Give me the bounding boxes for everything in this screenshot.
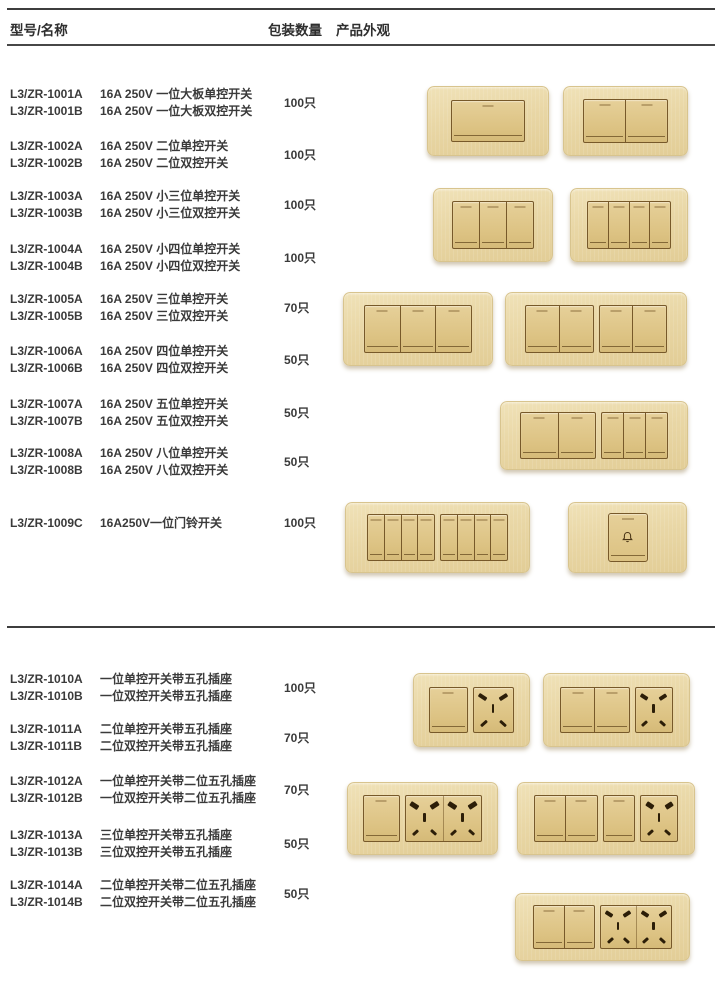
socket-slot bbox=[429, 801, 439, 809]
model-code: L3/ZR-1002A bbox=[0, 138, 100, 155]
switch-rocker-group bbox=[603, 795, 636, 842]
socket-slot bbox=[664, 829, 671, 836]
socket-face bbox=[443, 796, 481, 841]
catalog-page: 型号/名称 包装数量 产品外观 L3/ZR-1001A16A 250V 一位大板… bbox=[0, 0, 722, 981]
socket-slot bbox=[623, 937, 630, 944]
socket-5hole bbox=[473, 687, 514, 733]
product-description: 16A 250V 三位双控开关 bbox=[100, 308, 360, 325]
socket-slot bbox=[499, 720, 507, 728]
plate-1012 bbox=[347, 782, 498, 855]
model-code: L3/ZR-1003B bbox=[0, 205, 100, 222]
product-row: L3/ZR-1001A16A 250V 一位大板单控开关L3/ZR-1001B1… bbox=[0, 86, 360, 120]
product-description: 三位双控开关带五孔插座 bbox=[100, 844, 360, 861]
product-description: 16A 250V 小四位双控开关 bbox=[100, 258, 360, 275]
package-quantity: 50只 bbox=[284, 837, 309, 852]
switch-rocker bbox=[561, 688, 594, 732]
product-description: 二位双控开关带五孔插座 bbox=[100, 738, 360, 755]
socket-face bbox=[636, 688, 672, 732]
socket-face bbox=[636, 906, 672, 948]
model-code: L3/ZR-1007B bbox=[0, 413, 100, 430]
switch-rocker-group bbox=[534, 795, 598, 842]
socket-face bbox=[474, 688, 513, 732]
plate-1011 bbox=[543, 673, 690, 747]
column-header-appearance: 产品外观 bbox=[336, 19, 390, 39]
product-description: 一位单控开关带五孔插座 bbox=[100, 671, 360, 688]
package-quantity: 100只 bbox=[284, 516, 316, 531]
product-description: 16A250V一位门铃开关 bbox=[100, 515, 360, 532]
product-description: 16A 250V 四位双控开关 bbox=[100, 360, 360, 377]
model-code: L3/ZR-1005B bbox=[0, 308, 100, 325]
product-row: L3/ZR-1004A16A 250V 小四位单控开关L3/ZR-1004B16… bbox=[0, 241, 360, 275]
switch-rocker bbox=[600, 306, 633, 352]
switch-rocker bbox=[364, 796, 399, 841]
switch-rocker-group bbox=[440, 514, 508, 561]
switch-rocker-group bbox=[560, 687, 630, 733]
socket-slot bbox=[640, 693, 649, 701]
switch-rocker bbox=[417, 515, 434, 560]
switch-rocker bbox=[588, 202, 608, 248]
model-code: L3/ZR-1011B bbox=[0, 738, 100, 755]
switch-rocker-group bbox=[601, 412, 668, 459]
socket-slot bbox=[499, 692, 509, 701]
socket-slot bbox=[480, 720, 488, 728]
socket-slot bbox=[605, 910, 614, 918]
product-row: L3/ZR-1002A16A 250V 二位单控开关L3/ZR-1002B16A… bbox=[0, 138, 360, 172]
socket-slot bbox=[652, 704, 655, 713]
product-description: 16A 250V 小三位单控开关 bbox=[100, 188, 360, 205]
switch-rocker bbox=[506, 202, 533, 248]
socket-slot bbox=[448, 801, 458, 809]
top-rule bbox=[7, 8, 715, 10]
model-code: L3/ZR-1005A bbox=[0, 291, 100, 308]
model-code: L3/ZR-1013B bbox=[0, 844, 100, 861]
switch-rocker bbox=[490, 515, 507, 560]
switch-rocker-group bbox=[587, 201, 671, 249]
plate-1014 bbox=[515, 893, 690, 961]
switch-rocker bbox=[535, 796, 565, 841]
product-description: 16A 250V 五位双控开关 bbox=[100, 413, 360, 430]
switch-rocker-group bbox=[533, 905, 595, 949]
switch-rocker bbox=[584, 100, 625, 142]
socket-slot bbox=[617, 922, 619, 930]
socket-slot bbox=[658, 813, 660, 822]
socket-slot bbox=[664, 801, 673, 809]
socket-slot bbox=[659, 693, 668, 701]
product-description: 16A 250V 八位单控开关 bbox=[100, 445, 360, 462]
column-header-model: 型号/名称 bbox=[10, 19, 68, 39]
plate-1004 bbox=[570, 188, 688, 262]
socket-face bbox=[601, 906, 636, 948]
product-row: L3/ZR-1014A二位单控开关带二位五孔插座L3/ZR-1014B二位双控开… bbox=[0, 877, 360, 911]
socket-5hole bbox=[635, 687, 673, 733]
product-description: 二位单控开关带二位五孔插座 bbox=[100, 877, 360, 894]
package-quantity: 70只 bbox=[284, 301, 309, 316]
switch-rocker bbox=[368, 515, 384, 560]
socket-slot bbox=[652, 922, 654, 930]
package-quantity: 100只 bbox=[284, 96, 316, 111]
switch-rocker-group bbox=[583, 99, 668, 143]
socket-face bbox=[406, 796, 443, 841]
switch-rocker bbox=[594, 688, 628, 732]
switch-rocker-group bbox=[599, 305, 668, 353]
switch-rocker bbox=[632, 306, 666, 352]
switch-rocker bbox=[645, 413, 667, 458]
switch-rocker bbox=[457, 515, 474, 560]
package-quantity: 100只 bbox=[284, 198, 316, 213]
model-code: L3/ZR-1002B bbox=[0, 155, 100, 172]
plate-1009 bbox=[568, 502, 687, 573]
switch-rocker bbox=[623, 413, 645, 458]
product-description: 二位双控开关带二位五孔插座 bbox=[100, 894, 360, 911]
product-description: 16A 250V 五位单控开关 bbox=[100, 396, 360, 413]
model-code: L3/ZR-1004A bbox=[0, 241, 100, 258]
socket-slot bbox=[468, 829, 476, 836]
package-quantity: 100只 bbox=[284, 148, 316, 163]
switch-rocker bbox=[526, 306, 559, 352]
socket-slot bbox=[468, 801, 478, 809]
switch-rocker bbox=[430, 688, 467, 732]
switch-rocker bbox=[608, 202, 629, 248]
socket-slot bbox=[645, 801, 654, 809]
product-description: 一位双控开关带五孔插座 bbox=[100, 688, 360, 705]
switch-rocker-group bbox=[364, 305, 472, 353]
model-code: L3/ZR-1003A bbox=[0, 188, 100, 205]
plate-1010 bbox=[413, 673, 530, 747]
model-code: L3/ZR-1010A bbox=[0, 671, 100, 688]
switch-rocker bbox=[365, 306, 400, 352]
socket-slot bbox=[423, 813, 426, 822]
package-quantity: 50只 bbox=[284, 455, 309, 470]
plate-1001 bbox=[427, 86, 549, 156]
column-header-quantity: 包装数量 bbox=[268, 19, 322, 39]
socket-slot bbox=[430, 829, 438, 836]
product-description: 16A 250V 四位单控开关 bbox=[100, 343, 360, 360]
switch-rocker bbox=[565, 796, 596, 841]
package-quantity: 50只 bbox=[284, 406, 309, 421]
model-code: L3/ZR-1007A bbox=[0, 396, 100, 413]
plate-1007 bbox=[500, 401, 688, 470]
product-row: L3/ZR-1012A一位单控开关带二位五孔插座L3/ZR-1012B一位双控开… bbox=[0, 773, 360, 807]
socket-slot bbox=[461, 813, 464, 822]
plate-1008 bbox=[345, 502, 530, 573]
socket-slot bbox=[623, 910, 632, 918]
switch-rocker bbox=[649, 202, 670, 248]
model-code: L3/ZR-1011A bbox=[0, 721, 100, 738]
switch-rocker bbox=[534, 906, 564, 948]
doorbell-button bbox=[608, 513, 648, 562]
socket-slot bbox=[658, 910, 667, 918]
switch-rocker bbox=[629, 202, 650, 248]
product-description: 二位单控开关带五孔插座 bbox=[100, 721, 360, 738]
package-quantity: 70只 bbox=[284, 783, 309, 798]
model-code: L3/ZR-1008A bbox=[0, 445, 100, 462]
socket-5hole-double bbox=[405, 795, 482, 842]
switch-rocker bbox=[625, 100, 667, 142]
model-code: L3/ZR-1014B bbox=[0, 894, 100, 911]
socket-slot bbox=[450, 829, 458, 836]
model-code: L3/ZR-1012A bbox=[0, 773, 100, 790]
product-row: L3/ZR-1009C16A250V一位门铃开关100只 bbox=[0, 515, 360, 532]
switch-rocker-group bbox=[520, 412, 596, 459]
switch-rocker bbox=[400, 306, 436, 352]
product-row: L3/ZR-1003A16A 250V 小三位单控开关L3/ZR-1003B16… bbox=[0, 188, 360, 222]
switch-rocker bbox=[435, 306, 471, 352]
switch-rocker bbox=[474, 515, 491, 560]
socket-slot bbox=[640, 910, 649, 918]
product-row: L3/ZR-1013A三位单控开关带五孔插座L3/ZR-1013B三位双控开关带… bbox=[0, 827, 360, 861]
product-row: L3/ZR-1011A二位单控开关带五孔插座L3/ZR-1011B二位双控开关带… bbox=[0, 721, 360, 755]
socket-slot bbox=[478, 692, 488, 701]
plate-1006 bbox=[505, 292, 687, 366]
header-underline bbox=[7, 44, 715, 46]
switch-rocker-group bbox=[363, 795, 400, 842]
package-quantity: 50只 bbox=[284, 887, 309, 902]
switch-rocker bbox=[604, 796, 635, 841]
socket-slot bbox=[412, 829, 420, 836]
switch-rocker-group bbox=[525, 305, 594, 353]
socket-slot bbox=[658, 937, 665, 944]
switch-rocker bbox=[441, 515, 457, 560]
product-row: L3/ZR-1010A一位单控开关带五孔插座L3/ZR-1010B一位双控开关带… bbox=[0, 671, 360, 705]
model-code: L3/ZR-1009C bbox=[0, 515, 100, 532]
socket-slot bbox=[492, 704, 495, 713]
socket-5hole bbox=[640, 795, 678, 842]
switch-rocker bbox=[479, 202, 506, 248]
plate-1003 bbox=[433, 188, 553, 262]
switch-rocker-group bbox=[367, 514, 435, 561]
switch-rocker bbox=[384, 515, 401, 560]
model-code: L3/ZR-1006B bbox=[0, 360, 100, 377]
switch-rocker bbox=[521, 413, 558, 458]
switch-rocker bbox=[564, 906, 595, 948]
product-description: 16A 250V 二位单控开关 bbox=[100, 138, 360, 155]
product-description: 16A 250V 一位大板双控开关 bbox=[100, 103, 360, 120]
product-row: L3/ZR-1005A16A 250V 三位单控开关L3/ZR-1005B16A… bbox=[0, 291, 360, 325]
product-description: 三位单控开关带五孔插座 bbox=[100, 827, 360, 844]
model-code: L3/ZR-1014A bbox=[0, 877, 100, 894]
plate-1002 bbox=[563, 86, 688, 156]
model-code: L3/ZR-1001B bbox=[0, 103, 100, 120]
package-quantity: 70只 bbox=[284, 731, 309, 746]
product-description: 一位双控开关带二位五孔插座 bbox=[100, 790, 360, 807]
product-row: L3/ZR-1007A16A 250V 五位单控开关L3/ZR-1007B16A… bbox=[0, 396, 360, 430]
socket-face bbox=[641, 796, 677, 841]
model-code: L3/ZR-1008B bbox=[0, 462, 100, 479]
product-description: 16A 250V 小三位双控开关 bbox=[100, 205, 360, 222]
socket-slot bbox=[642, 937, 649, 944]
model-code: L3/ZR-1001A bbox=[0, 86, 100, 103]
product-description: 16A 250V 小四位单控开关 bbox=[100, 241, 360, 258]
bell-icon bbox=[620, 530, 635, 545]
switch-rocker bbox=[602, 413, 623, 458]
model-code: L3/ZR-1004B bbox=[0, 258, 100, 275]
model-code: L3/ZR-1006A bbox=[0, 343, 100, 360]
model-code: L3/ZR-1010B bbox=[0, 688, 100, 705]
switch-rocker bbox=[559, 306, 593, 352]
socket-slot bbox=[641, 720, 648, 727]
switch-rocker bbox=[453, 202, 479, 248]
product-description: 16A 250V 一位大板单控开关 bbox=[100, 86, 360, 103]
plate-1005 bbox=[343, 292, 493, 366]
socket-slot bbox=[606, 937, 613, 944]
socket-5hole-double bbox=[600, 905, 672, 949]
product-description: 一位单控开关带二位五孔插座 bbox=[100, 773, 360, 790]
switch-rocker-group bbox=[452, 201, 534, 249]
switch-rocker bbox=[452, 101, 524, 141]
product-description: 16A 250V 二位双控开关 bbox=[100, 155, 360, 172]
product-description: 16A 250V 八位双控开关 bbox=[100, 462, 360, 479]
switch-rocker bbox=[558, 413, 596, 458]
package-quantity: 50只 bbox=[284, 353, 309, 368]
package-quantity: 100只 bbox=[284, 681, 316, 696]
socket-slot bbox=[647, 829, 654, 836]
switch-rocker-group bbox=[429, 687, 468, 733]
socket-slot bbox=[659, 720, 666, 727]
product-row: L3/ZR-1008A16A 250V 八位单控开关L3/ZR-1008B16A… bbox=[0, 445, 360, 479]
product-description: 16A 250V 三位单控开关 bbox=[100, 291, 360, 308]
switch-rocker bbox=[401, 515, 418, 560]
product-row: L3/ZR-1006A16A 250V 四位单控开关L3/ZR-1006B16A… bbox=[0, 343, 360, 377]
model-code: L3/ZR-1013A bbox=[0, 827, 100, 844]
package-quantity: 100只 bbox=[284, 251, 316, 266]
model-code: L3/ZR-1012B bbox=[0, 790, 100, 807]
socket-slot bbox=[410, 801, 420, 809]
section-divider bbox=[7, 626, 715, 628]
plate-1013 bbox=[517, 782, 695, 855]
switch-rocker-group bbox=[451, 100, 525, 142]
